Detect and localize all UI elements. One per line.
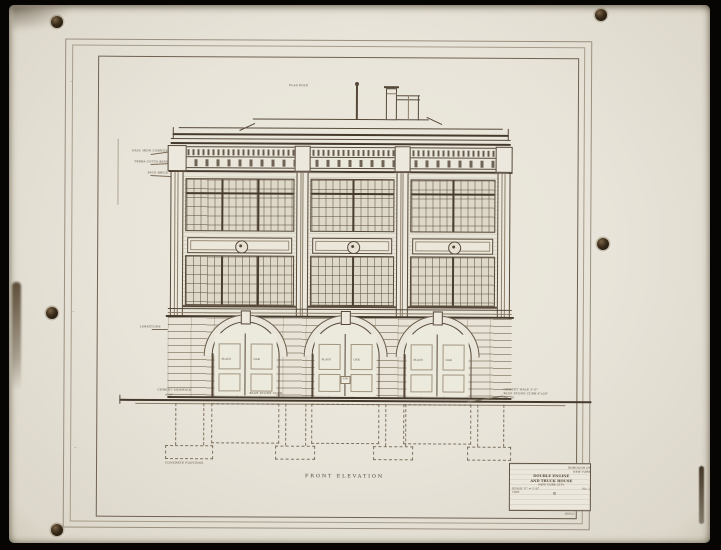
window-mullion — [257, 180, 259, 231]
pier-foundation-line — [477, 405, 478, 447]
bay3-lower-window — [410, 256, 495, 306]
arch1-jamb-left — [211, 353, 213, 397]
photograph-of-architectural-drawing: ~ ~ ~ FLAG POLE GALV. IRON CORNICE — [0, 0, 721, 550]
door-panel — [250, 373, 272, 391]
chimney-cap-line — [384, 86, 399, 88]
window-mullion — [352, 257, 354, 305]
roof-railing-post-mid — [408, 95, 409, 120]
arch3-keystone — [433, 311, 443, 325]
window-mullion — [452, 181, 454, 232]
door-label-right: OAK — [254, 357, 260, 360]
arch2-keystone — [341, 311, 351, 325]
bay3-spandrel-panel — [412, 238, 493, 254]
drawing-title: FRONT ELEVATION — [305, 473, 384, 479]
margin-mark-1: ~ — [70, 80, 73, 84]
door-panel — [350, 374, 372, 392]
arch3-jamb-right — [470, 355, 472, 399]
door-label-left: PLAIN — [414, 358, 423, 361]
margin-mark-3: ~ — [74, 446, 77, 450]
door-label-left: PLAIN — [222, 357, 231, 360]
pier-foundation-line — [285, 404, 286, 446]
arch1-door-area: PLAIN OAK — [214, 333, 276, 395]
pier-foundation-line — [385, 404, 386, 446]
transom-bar — [311, 193, 393, 195]
title-block-date: 1905 — [512, 491, 520, 496]
door-label-right: OAK — [354, 358, 360, 361]
footing-box-4 — [467, 447, 511, 461]
door-panel — [442, 374, 464, 392]
arch2-jamb-right — [378, 354, 380, 398]
bay3-medallion — [448, 242, 461, 255]
house-number-plaque: 158 — [340, 376, 350, 384]
pilaster-3 — [396, 173, 409, 318]
grade-dim-left: 6'-0" — [165, 393, 173, 397]
pilaster-capital-3 — [395, 146, 411, 172]
pier-foundation-line — [203, 403, 204, 445]
pier-foundation-line — [503, 405, 504, 447]
door-label-right: OAK — [446, 359, 452, 362]
arch2-jamb-left — [311, 354, 313, 398]
footing-box-1 — [165, 445, 213, 459]
arch3-door-area: PLAIN OAK — [406, 334, 468, 396]
pilaster-capital-4 — [496, 147, 513, 173]
leader-line-wall — [152, 329, 169, 330]
bay2-medallion — [347, 241, 360, 254]
roof-railing-post — [418, 95, 419, 120]
footing-box-3 — [373, 446, 413, 460]
window-mullion — [452, 258, 454, 306]
bay2-spandrel-panel — [312, 238, 392, 254]
curb-tick — [119, 395, 120, 404]
bay1-spandrel-panel — [187, 237, 292, 254]
door-label-left: PLAIN — [322, 358, 331, 361]
chimney-band-line — [387, 93, 397, 94]
pier-foundation-line — [405, 404, 406, 446]
flagpole-ball-finial — [355, 82, 359, 86]
bay3-upper-window — [410, 179, 495, 232]
arch1-keystone — [241, 310, 251, 324]
title-block-mark: B — [553, 491, 556, 496]
drawing-sheet: ~ ~ ~ FLAG POLE GALV. IRON CORNICE — [0, 0, 721, 550]
footing-box-2 — [275, 446, 315, 460]
door-panel — [410, 374, 432, 392]
arch3-jamb-left — [403, 354, 405, 398]
bay2-lower-window — [310, 256, 394, 306]
window-mullion — [257, 257, 259, 305]
pilaster-capital-2 — [295, 146, 311, 172]
bay2-upper-window — [310, 179, 394, 232]
foundation-outline-bay2 — [311, 404, 379, 444]
door-center-joint — [344, 334, 345, 396]
bay1-lower-window — [185, 255, 294, 306]
grade-note-mid: BLUE STONE CURB — [249, 391, 282, 395]
bay1-medallion — [235, 240, 248, 253]
transom-bar — [411, 193, 494, 195]
corner-number: 45621 — [565, 512, 575, 516]
foundation-outline-bay3 — [403, 404, 471, 444]
title-block: BOROUGH OF NEW YORK DOUBLE ENGINE AND TR… — [509, 463, 591, 511]
title-block-spacer — [589, 491, 590, 496]
arch2-door-area: PLAIN OAK 158 — [314, 334, 376, 396]
bay1-upper-window — [185, 178, 294, 232]
window-mullion — [221, 256, 223, 304]
roof-annotation: FLAG POLE — [289, 84, 308, 88]
pier-foundation-line — [305, 404, 306, 446]
door-center-joint — [244, 333, 245, 395]
door-panel — [318, 374, 340, 392]
foundation-outline-bay1 — [211, 403, 279, 443]
pier-foundation-line — [175, 403, 176, 445]
footing-annotation: CONCRETE FOOTINGS — [165, 461, 203, 465]
pilaster-2 — [296, 173, 309, 318]
title-block-content: BOROUGH OF NEW YORK DOUBLE ENGINE AND TR… — [512, 466, 591, 496]
pilaster-capital-1 — [168, 145, 187, 171]
flagpole — [356, 85, 358, 120]
pilaster-4 — [497, 174, 511, 319]
house-number: 158 — [342, 377, 347, 380]
door-panel — [218, 373, 240, 391]
door-center-joint — [436, 334, 437, 396]
grade-note-left: CEMENT SIDEWALK — [157, 388, 191, 392]
window-mullion — [221, 179, 223, 230]
transom-bar — [186, 192, 293, 194]
grade-note-right-3: No. 10 — [503, 396, 514, 400]
margin-mark-2: ~ — [72, 310, 75, 314]
window-mullion — [352, 180, 354, 231]
pilaster-1 — [170, 172, 184, 317]
